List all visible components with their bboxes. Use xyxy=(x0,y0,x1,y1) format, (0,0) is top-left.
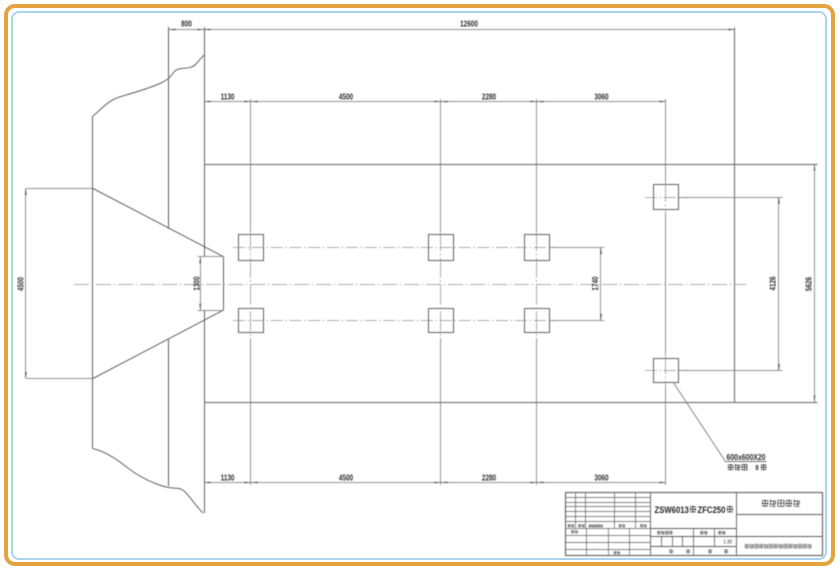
svg-text:12600: 12600 xyxy=(460,19,478,29)
svg-text:1130: 1130 xyxy=(221,92,235,102)
svg-text:5626: 5626 xyxy=(804,277,814,291)
svg-text:4500: 4500 xyxy=(339,473,353,483)
svg-text:1130: 1130 xyxy=(221,473,235,483)
svg-text:1300: 1300 xyxy=(192,276,202,290)
svg-text:4500: 4500 xyxy=(16,277,26,291)
svg-text:2280: 2280 xyxy=(482,473,496,483)
svg-text:8: 8 xyxy=(755,465,759,473)
svg-text:4126: 4126 xyxy=(768,276,778,290)
svg-text:1740: 1740 xyxy=(590,276,600,290)
svg-text:ZSW6013: ZSW6013 xyxy=(655,504,690,515)
svg-text:2280: 2280 xyxy=(482,92,496,102)
svg-text:600x600X20: 600x600X20 xyxy=(727,452,766,462)
svg-text:ZFC250: ZFC250 xyxy=(698,504,726,515)
svg-text:800: 800 xyxy=(181,19,192,29)
svg-text:1:30: 1:30 xyxy=(723,539,732,545)
svg-text:4500: 4500 xyxy=(339,92,353,102)
svg-text:3060: 3060 xyxy=(594,473,608,483)
svg-text:3060: 3060 xyxy=(594,92,608,102)
